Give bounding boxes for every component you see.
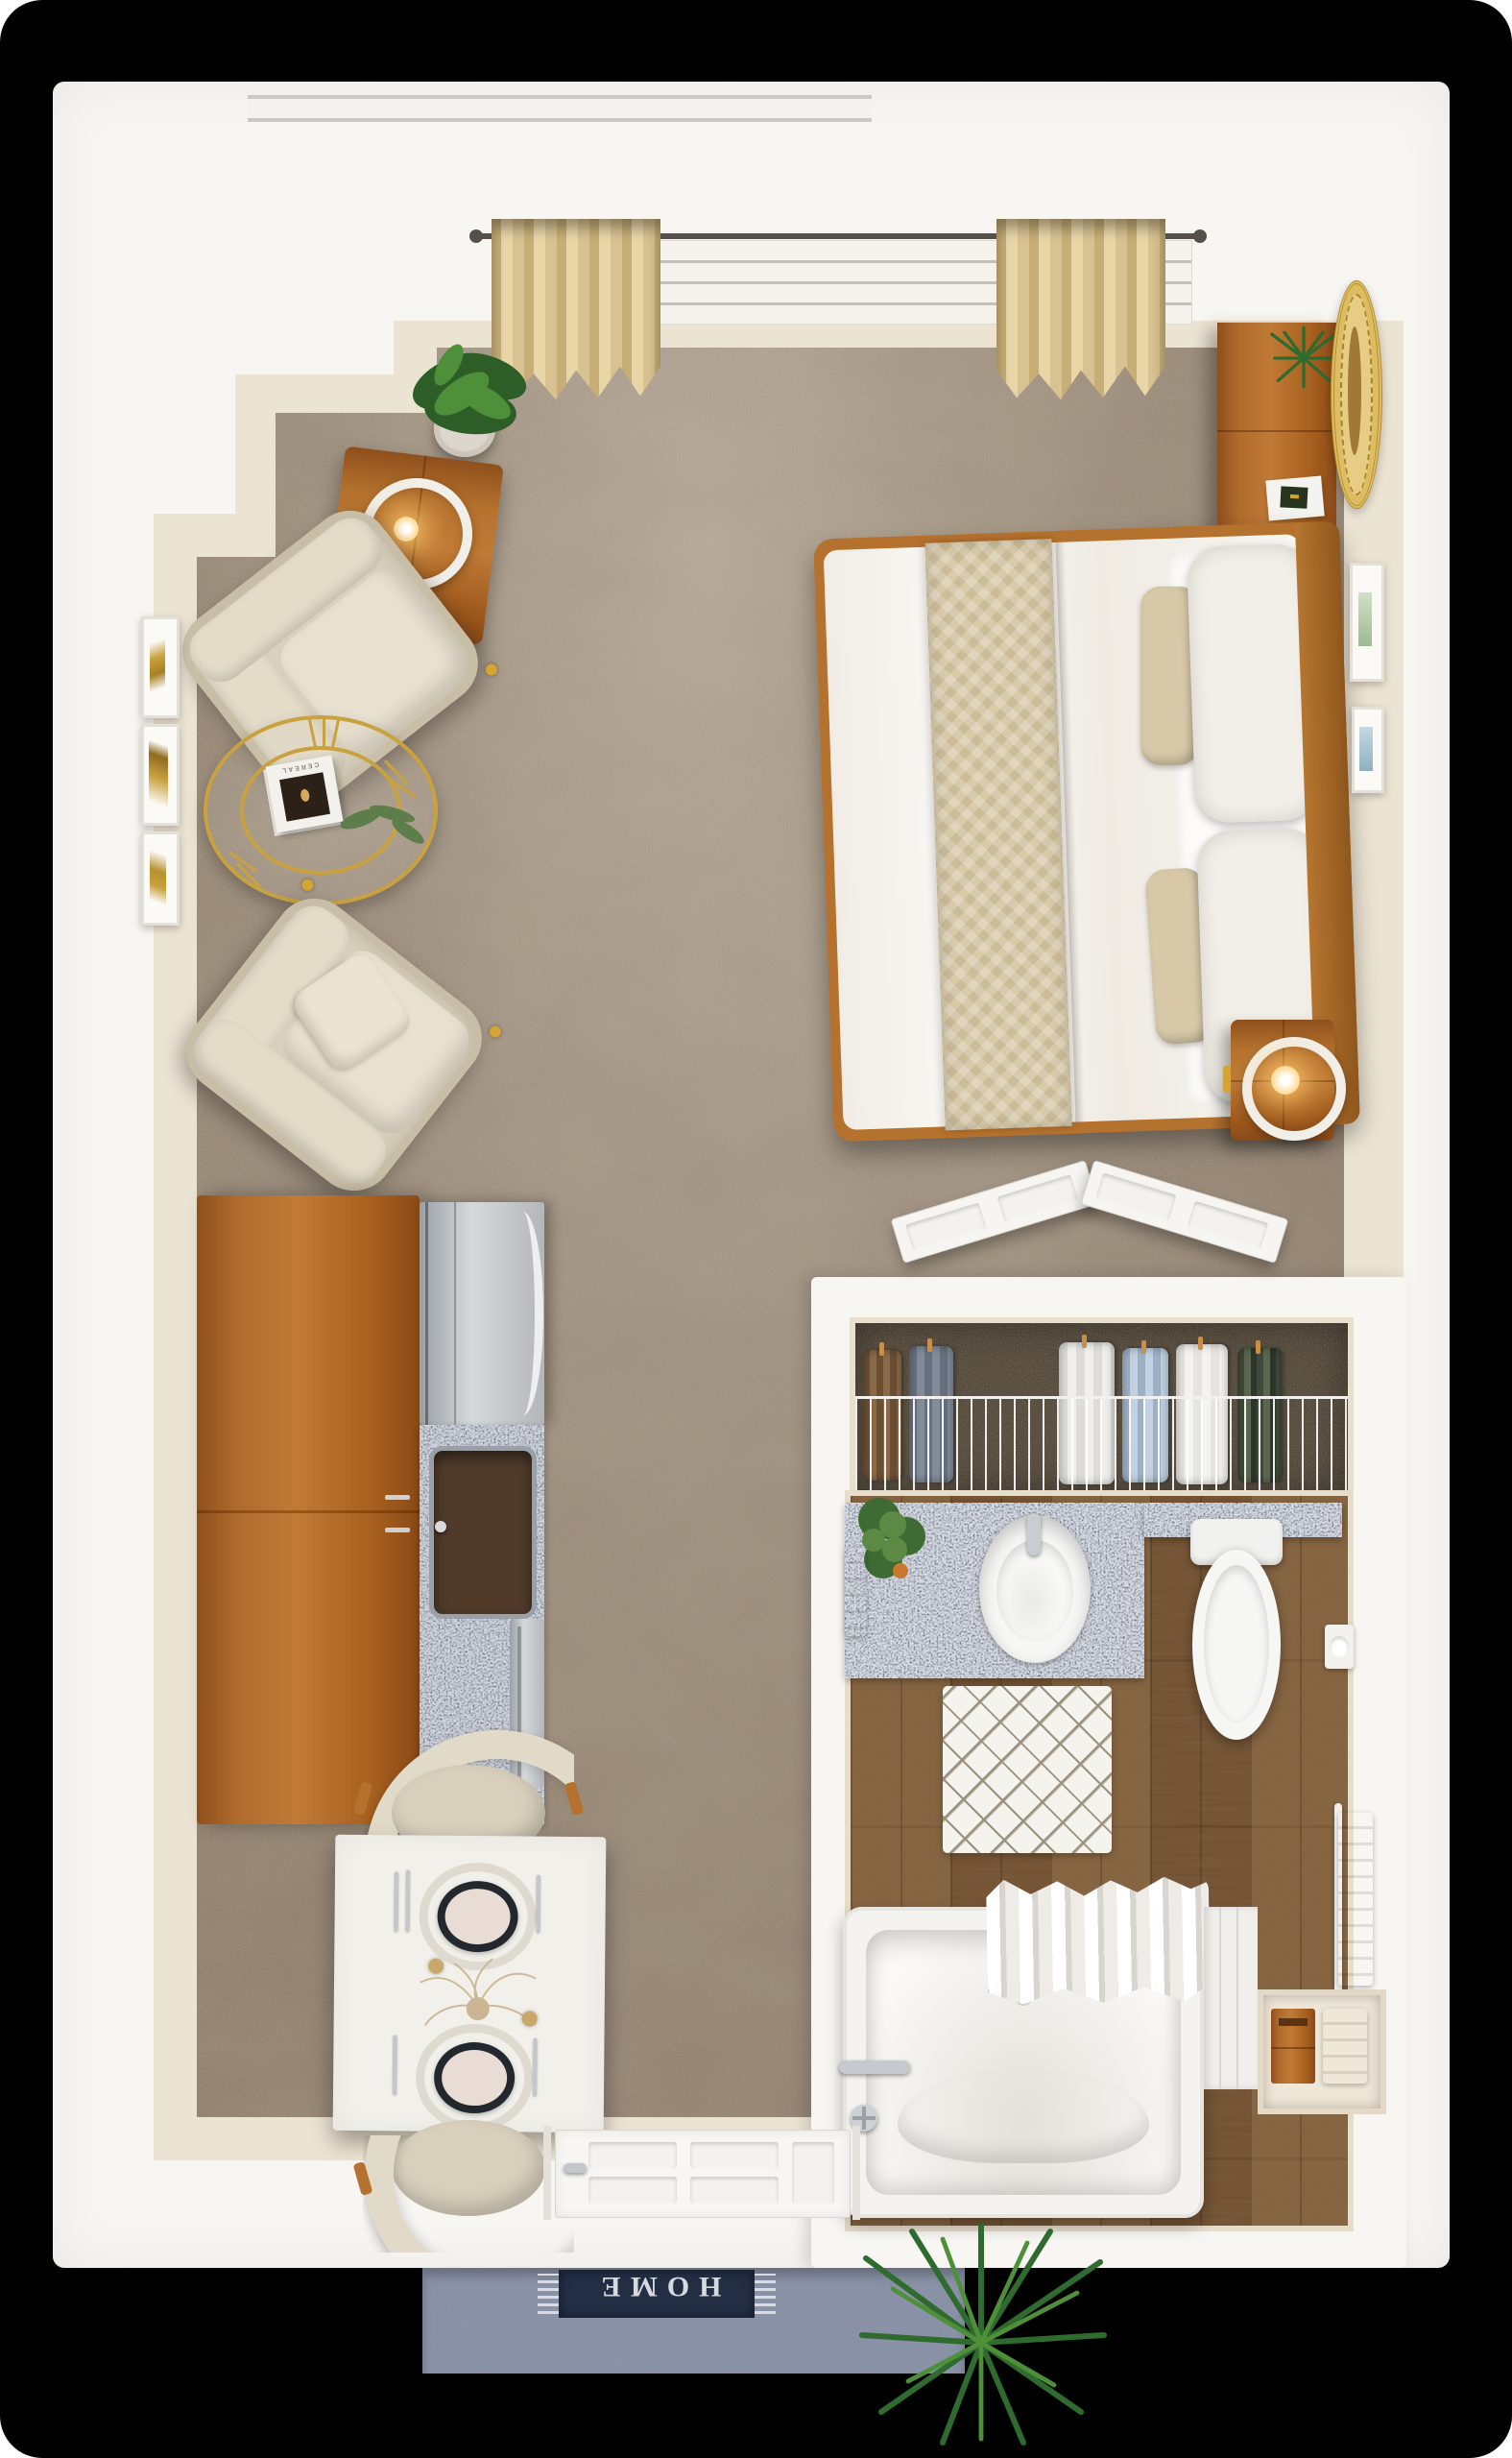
magazine-cover-moon bbox=[300, 788, 310, 802]
wall-art-triptych-panel bbox=[141, 831, 180, 926]
gold-abstract-stroke bbox=[149, 733, 168, 815]
nightstand-handle bbox=[1223, 1066, 1231, 1093]
knife bbox=[536, 1875, 540, 1933]
doormat-fringe bbox=[538, 2274, 559, 2314]
framed-art bbox=[1352, 707, 1384, 793]
doormat-text: HOME bbox=[559, 2270, 755, 2302]
clothes-hanger bbox=[1198, 1337, 1203, 1350]
nightstand-lamp-bulb bbox=[1271, 1066, 1300, 1095]
gold-abstract-stroke bbox=[150, 627, 165, 704]
dresser-tray-item bbox=[1280, 486, 1308, 508]
ledge-step-line bbox=[1219, 1907, 1221, 2089]
framed-art-print bbox=[1358, 592, 1372, 646]
toilet-lid-line bbox=[1204, 1565, 1269, 1723]
hanging-towel bbox=[1338, 1813, 1373, 1986]
magazine-cover-photo bbox=[279, 772, 330, 821]
shower-curtain bbox=[986, 1876, 1211, 2005]
tub-handle-cross bbox=[852, 2116, 876, 2120]
niche-wood-box bbox=[1271, 2009, 1315, 2084]
place-setting-charger bbox=[416, 2024, 534, 2133]
sink-faucet bbox=[1027, 1513, 1041, 1555]
toilet-paper-holder bbox=[1325, 1625, 1354, 1669]
niche-towel-stack bbox=[1323, 2009, 1367, 2084]
coffee-table-spoke bbox=[307, 717, 317, 750]
closet-wire-shelf bbox=[855, 1396, 1348, 1495]
napkin-ring bbox=[522, 2011, 538, 2026]
door-jamb bbox=[852, 2126, 860, 2220]
linen-niche bbox=[1258, 1989, 1386, 2114]
floor-plant bbox=[398, 322, 542, 466]
cabinet-seam bbox=[197, 1510, 420, 1513]
magazine: CEREAL bbox=[265, 755, 343, 832]
place-setting-plate bbox=[437, 1881, 518, 1953]
door-jamb bbox=[543, 2126, 551, 2220]
clothes-hanger bbox=[879, 1342, 884, 1356]
framed-art-print bbox=[1359, 727, 1373, 771]
curtain-rod-finial bbox=[1193, 229, 1207, 243]
framed-art bbox=[1350, 563, 1384, 682]
clothes-hanger bbox=[1082, 1335, 1087, 1348]
gold-abstract-stroke bbox=[150, 841, 166, 914]
door-handle bbox=[564, 2163, 587, 2173]
door-panel bbox=[792, 2142, 834, 2204]
side-table-lamp-bulb bbox=[394, 517, 419, 542]
curtain-rod-finial bbox=[469, 229, 483, 243]
wall-art-triptych-panel bbox=[141, 616, 180, 718]
stoop-plant bbox=[854, 2224, 1110, 2450]
cabinet-handle bbox=[385, 1528, 410, 1532]
dining-table bbox=[333, 1835, 607, 2133]
vanity-hand-towels bbox=[845, 1548, 866, 1636]
top-window-glazing bbox=[248, 95, 872, 122]
doormat: HOME bbox=[538, 2270, 776, 2318]
coffee-table-spoke bbox=[330, 717, 340, 750]
range-gap bbox=[425, 1202, 428, 1425]
toilet-paper-roll bbox=[1330, 1636, 1349, 1657]
gold-clasp bbox=[1290, 494, 1299, 498]
clothes-hanger bbox=[927, 1338, 932, 1352]
entry-door bbox=[555, 2130, 851, 2218]
niche-box-slot bbox=[1279, 2018, 1308, 2026]
coffee-table-spoke bbox=[323, 717, 325, 750]
doormat-center: HOME bbox=[559, 2270, 755, 2318]
range bbox=[420, 1202, 544, 1425]
floorplan-canvas: CEREAL bbox=[0, 0, 1512, 2458]
range-handle bbox=[502, 1212, 543, 1415]
toilet-bowl bbox=[1192, 1550, 1281, 1740]
clothes-hanger bbox=[1256, 1340, 1260, 1354]
spoon bbox=[533, 2038, 538, 2096]
dining-chair-bottom bbox=[363, 2135, 574, 2253]
fork bbox=[405, 1869, 410, 1931]
door-panel bbox=[690, 2142, 779, 2169]
range-door-line bbox=[454, 1202, 456, 1425]
kitchen-faucet bbox=[435, 1521, 446, 1532]
closet-interior bbox=[850, 1317, 1354, 1498]
dresser-tray bbox=[1265, 476, 1324, 521]
place-setting-plate bbox=[434, 2042, 516, 2114]
ledge-step-line bbox=[1236, 1907, 1238, 2089]
tub-surround-ledge bbox=[1204, 1907, 1258, 2089]
round-jute-wall-decor bbox=[1331, 280, 1382, 509]
niche-box-seam bbox=[1271, 2047, 1315, 2049]
bathroom-sink bbox=[979, 1515, 1091, 1663]
fork bbox=[393, 2035, 397, 2094]
bath-mat bbox=[943, 1686, 1112, 1853]
door-panel bbox=[588, 2142, 677, 2169]
dresser-seam bbox=[1217, 430, 1336, 432]
tub-spout bbox=[839, 2060, 910, 2074]
table-plant-sprig bbox=[334, 785, 440, 853]
wall-art-triptych-panel bbox=[141, 724, 180, 826]
clothes-hanger bbox=[1141, 1340, 1146, 1354]
jute-center bbox=[1348, 326, 1361, 455]
tub-seat-contour bbox=[898, 2068, 1149, 2163]
fork bbox=[394, 1871, 398, 1931]
cabinet-handle bbox=[385, 1495, 410, 1500]
bed-runner-blanket bbox=[924, 539, 1071, 1130]
doormat-fringe bbox=[755, 2274, 776, 2314]
door-panel bbox=[690, 2177, 779, 2204]
door-panel bbox=[588, 2177, 677, 2204]
kitchen-sink bbox=[429, 1446, 537, 1619]
